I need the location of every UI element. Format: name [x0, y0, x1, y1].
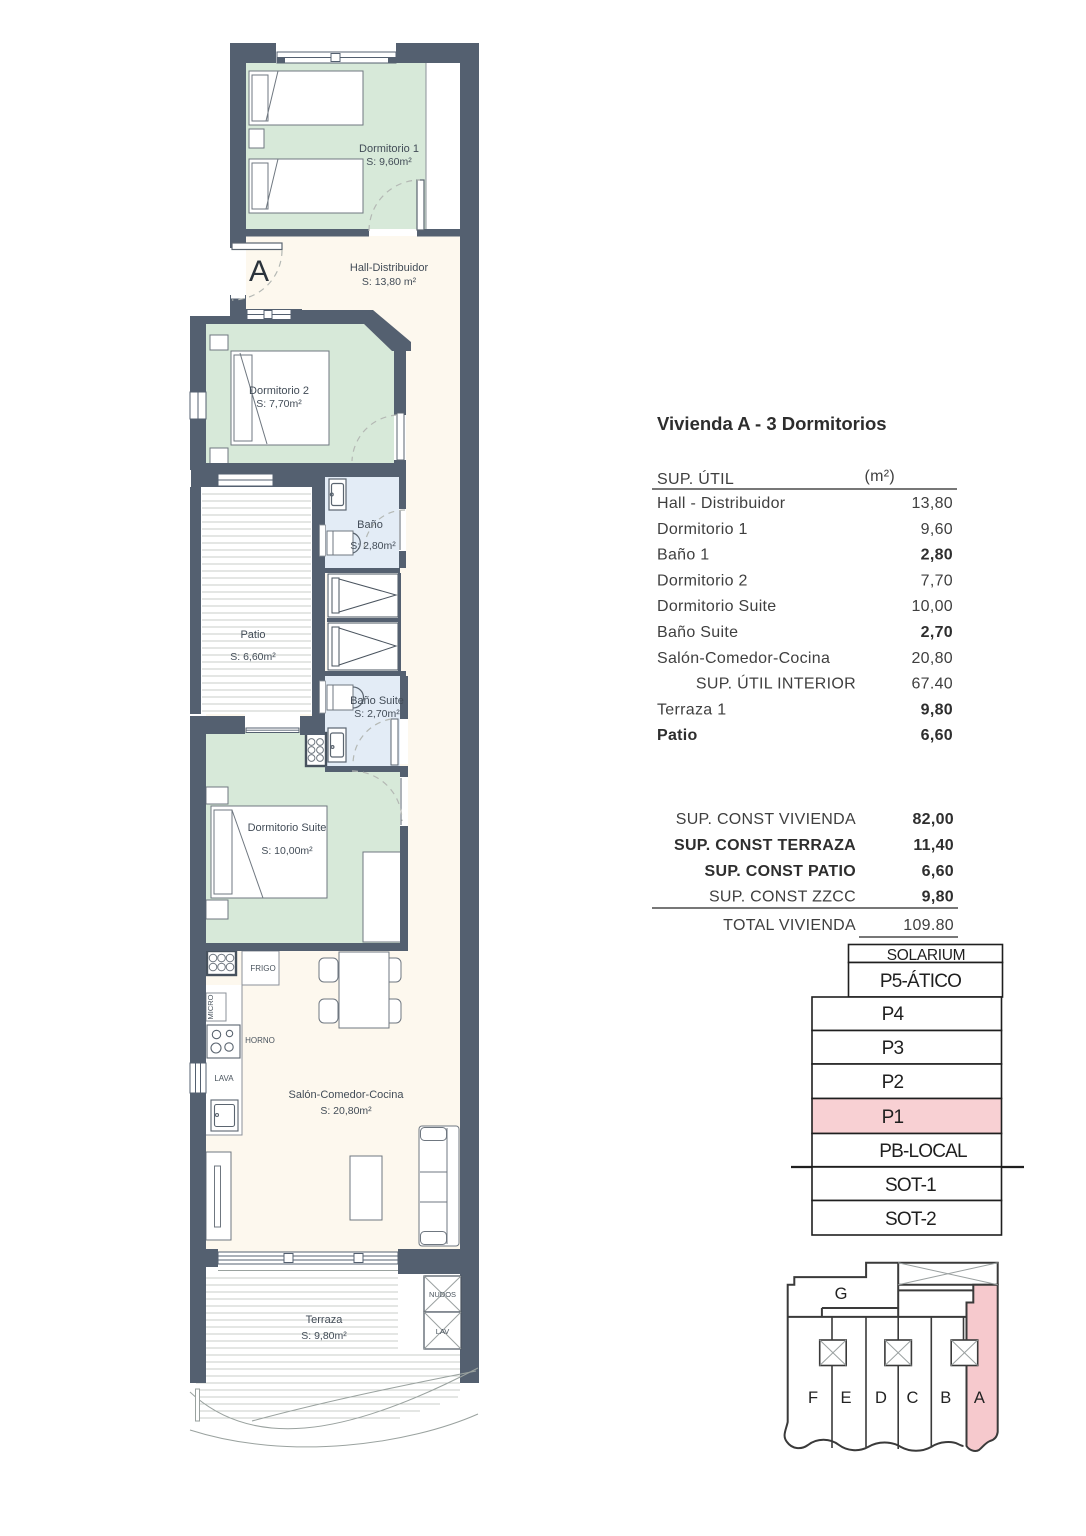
- svg-text:Baño Suite: Baño Suite: [657, 624, 738, 641]
- svg-text:P2: P2: [882, 1072, 904, 1093]
- svg-text:S: 20,80m²: S: 20,80m²: [320, 1105, 372, 1117]
- svg-text:NUDOS: NUDOS: [429, 1290, 456, 1299]
- svg-text:2,70: 2,70: [921, 624, 953, 641]
- svg-text:Hall-Distribuidor: Hall-Distribuidor: [350, 262, 429, 274]
- svg-text:LAV: LAV: [436, 1327, 450, 1336]
- svg-text:Dormitorio 1: Dormitorio 1: [359, 143, 419, 155]
- svg-text:Patio: Patio: [240, 629, 265, 641]
- svg-text:S: 2,70m²: S: 2,70m²: [354, 708, 400, 720]
- svg-text:C: C: [907, 1389, 919, 1407]
- svg-text:S: 9,80m²: S: 9,80m²: [301, 1330, 347, 1342]
- svg-text:SUP. CONST PATIO: SUP. CONST PATIO: [705, 863, 857, 880]
- svg-text:Terraza: Terraza: [306, 1314, 344, 1326]
- svg-text:67.40: 67.40: [911, 676, 953, 693]
- svg-text:SUP. CONST VIVIENDA: SUP. CONST VIVIENDA: [676, 811, 856, 828]
- svg-text:10,00: 10,00: [911, 598, 953, 615]
- svg-text:Dormitorio Suite: Dormitorio Suite: [248, 822, 327, 834]
- svg-text:P3: P3: [882, 1038, 904, 1059]
- svg-text:S: 6,60m²: S: 6,60m²: [230, 651, 276, 663]
- svg-text:20,80: 20,80: [911, 650, 953, 667]
- svg-text:Vivienda A - 3 Dormitorios: Vivienda A - 3 Dormitorios: [657, 413, 887, 434]
- svg-text:G: G: [835, 1285, 848, 1303]
- svg-text:Salón-Comedor-Cocina: Salón-Comedor-Cocina: [657, 650, 830, 667]
- svg-text:9,80: 9,80: [922, 889, 954, 906]
- svg-text:A: A: [974, 1389, 985, 1407]
- svg-text:S: 10,00m²: S: 10,00m²: [261, 845, 313, 857]
- svg-text:S: 2,80m²: S: 2,80m²: [350, 540, 396, 552]
- svg-text:9,80: 9,80: [921, 701, 953, 718]
- svg-text:D: D: [875, 1389, 887, 1407]
- svg-text:TOTAL VIVIENDA: TOTAL VIVIENDA: [723, 917, 856, 934]
- svg-text:6,60: 6,60: [921, 727, 953, 744]
- svg-text:82,00: 82,00: [912, 811, 954, 828]
- svg-text:Baño: Baño: [357, 519, 383, 531]
- svg-text:S: 7,70m²: S: 7,70m²: [256, 398, 302, 410]
- svg-text:Patio: Patio: [657, 727, 698, 744]
- svg-text:Hall - Distribuidor: Hall - Distribuidor: [657, 495, 786, 512]
- svg-text:9,60: 9,60: [921, 521, 953, 538]
- svg-text:Terraza 1: Terraza 1: [657, 701, 726, 718]
- svg-text:2,80: 2,80: [921, 547, 953, 564]
- svg-text:SOT-1: SOT-1: [885, 1175, 936, 1196]
- svg-text:Salón-Comedor-Cocina: Salón-Comedor-Cocina: [289, 1089, 405, 1101]
- svg-text:Dormitorio 2: Dormitorio 2: [657, 572, 748, 589]
- svg-text:P4: P4: [882, 1004, 905, 1025]
- svg-text:S: 13,80 m²: S: 13,80 m²: [362, 276, 417, 288]
- svg-text:S: 9,60m²: S: 9,60m²: [366, 156, 412, 168]
- svg-text:Baño 1: Baño 1: [657, 547, 710, 564]
- svg-text:HORNO: HORNO: [245, 1036, 275, 1045]
- svg-text:LAVA: LAVA: [214, 1074, 234, 1083]
- svg-text:Dormitorio Suite: Dormitorio Suite: [657, 598, 777, 615]
- svg-text:PB-LOCAL: PB-LOCAL: [879, 1141, 967, 1162]
- svg-text:B: B: [940, 1389, 951, 1407]
- svg-text:P1: P1: [882, 1107, 904, 1128]
- svg-text:SUP. ÚTIL: SUP. ÚTIL: [657, 469, 734, 488]
- svg-text:13,80: 13,80: [911, 495, 953, 512]
- svg-text:SUP. CONST ZZCC: SUP. CONST ZZCC: [709, 889, 856, 906]
- svg-text:Baño Suite: Baño Suite: [350, 695, 404, 707]
- svg-text:7,70: 7,70: [921, 572, 953, 589]
- svg-text:P5-ÁTICO: P5-ÁTICO: [880, 971, 961, 992]
- svg-text:MICRO: MICRO: [206, 994, 215, 1019]
- svg-text:SUP. CONST TERRAZA: SUP. CONST TERRAZA: [674, 837, 856, 854]
- svg-text:E: E: [840, 1389, 851, 1407]
- svg-text:SOT-2: SOT-2: [885, 1209, 936, 1230]
- svg-text:Dormitorio 2: Dormitorio 2: [249, 385, 309, 397]
- svg-text:SOLARIUM: SOLARIUM: [887, 947, 966, 964]
- svg-text:Dormitorio 1: Dormitorio 1: [657, 521, 748, 538]
- svg-text:F: F: [808, 1389, 818, 1407]
- svg-text:6,60: 6,60: [922, 863, 954, 880]
- svg-text:(m²): (m²): [864, 468, 895, 485]
- svg-text:A: A: [249, 255, 269, 288]
- svg-text:109.80: 109.80: [903, 917, 954, 934]
- svg-text:SUP. ÚTIL INTERIOR: SUP. ÚTIL INTERIOR: [696, 674, 856, 693]
- svg-text:FRIGO: FRIGO: [250, 964, 275, 973]
- svg-text:11,40: 11,40: [913, 837, 954, 854]
